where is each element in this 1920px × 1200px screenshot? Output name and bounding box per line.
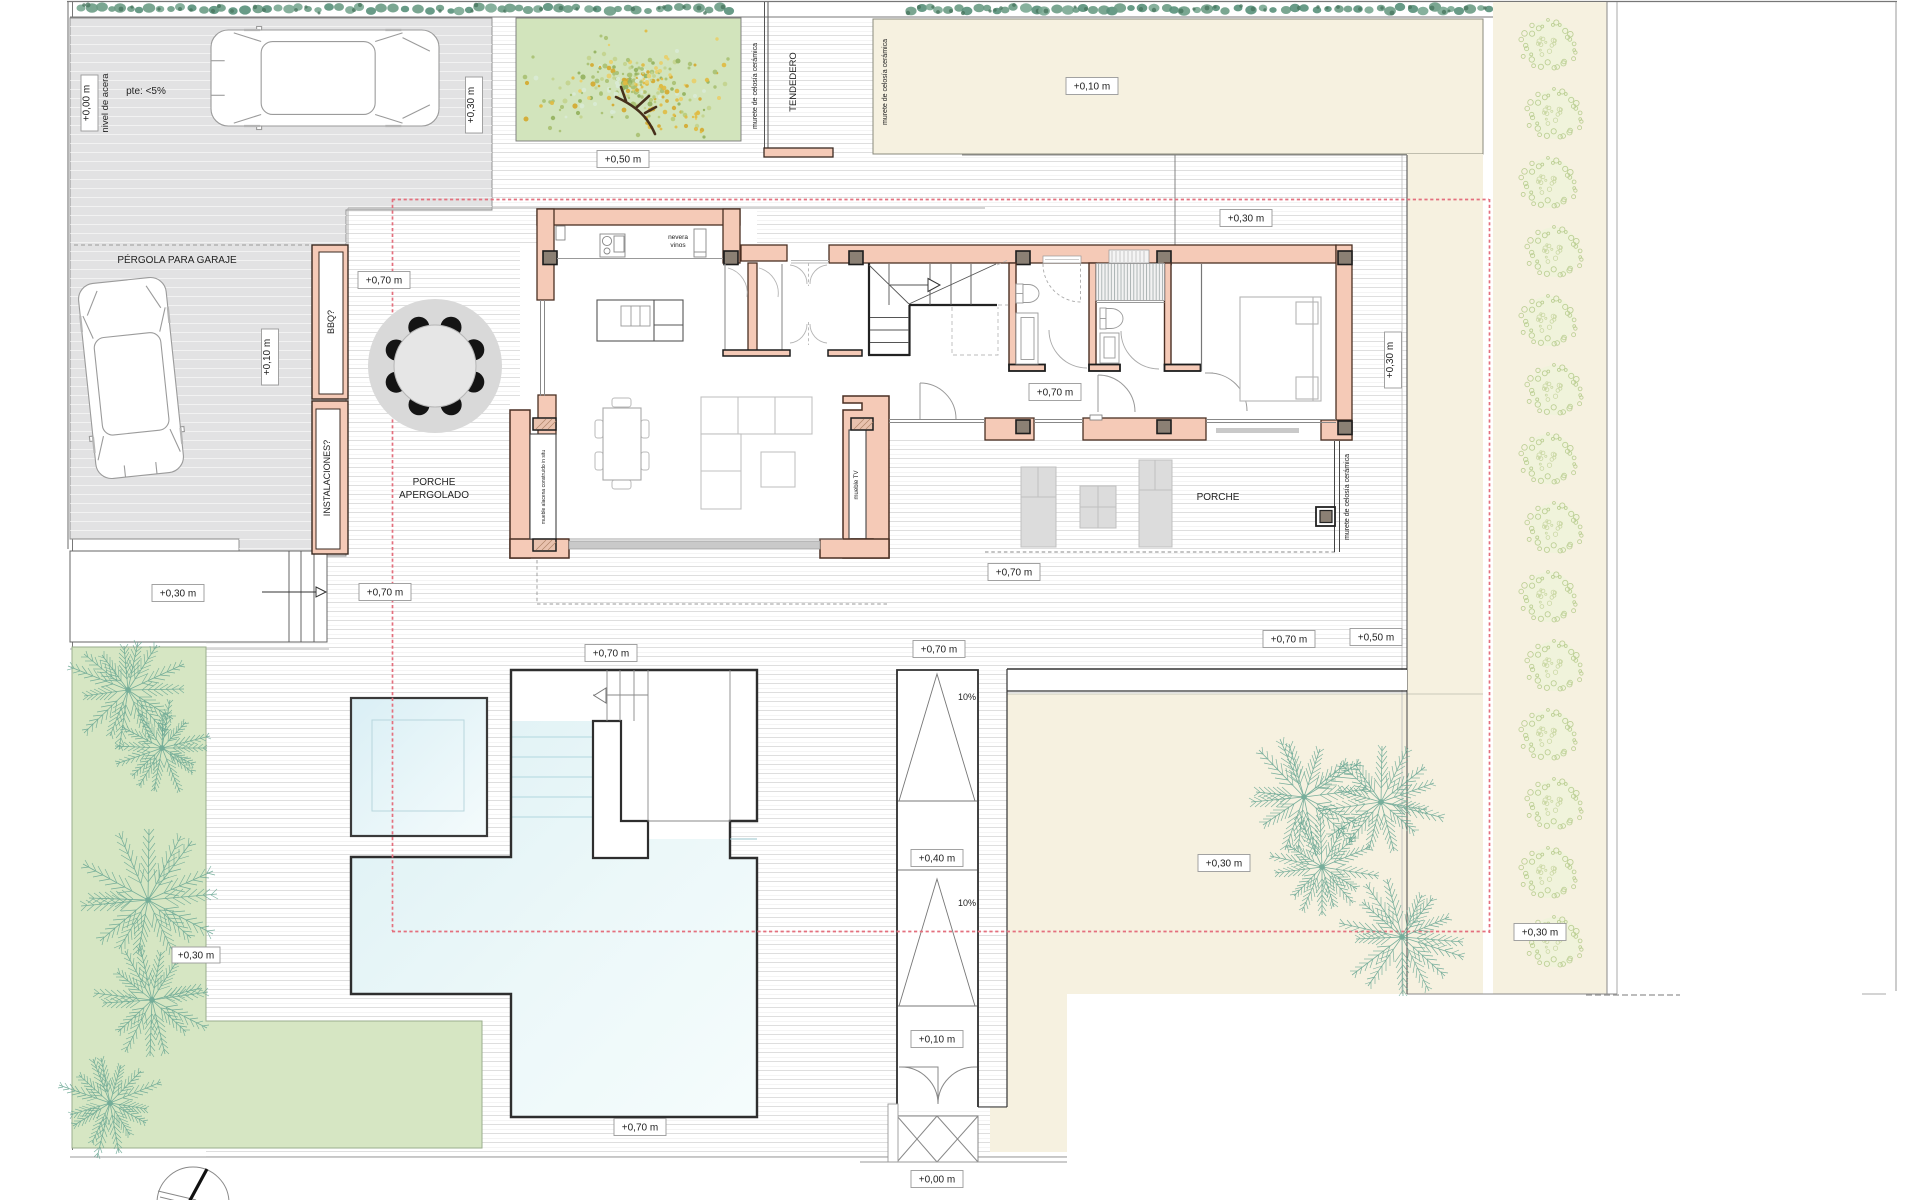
svg-text:+0,30 m: +0,30 m xyxy=(1385,342,1396,378)
svg-text:murete de celosía cerámica: murete de celosía cerámica xyxy=(752,43,759,129)
svg-text:+0,30 m: +0,30 m xyxy=(466,87,477,123)
svg-text:mueble alacena construido in s: mueble alacena construido in situ xyxy=(541,450,547,524)
svg-text:+0,40 m: +0,40 m xyxy=(919,854,955,865)
svg-text:+0,70 m: +0,70 m xyxy=(367,588,403,599)
svg-text:vinos: vinos xyxy=(670,242,686,249)
svg-text:+0,30 m: +0,30 m xyxy=(178,951,214,962)
svg-text:10%: 10% xyxy=(958,692,976,702)
svg-text:+0,50 m: +0,50 m xyxy=(605,155,641,166)
svg-text:murete de celosía cerámica: murete de celosía cerámica xyxy=(882,39,889,125)
svg-text:10%: 10% xyxy=(958,898,976,908)
svg-text:BBQ?: BBQ? xyxy=(326,310,336,334)
svg-text:+0,70 m: +0,70 m xyxy=(996,568,1032,579)
svg-text:+0,70 m: +0,70 m xyxy=(921,645,957,656)
svg-text:nevera: nevera xyxy=(668,234,688,241)
svg-text:pte: <5%: pte: <5% xyxy=(126,86,166,97)
svg-text:PORCHE: PORCHE xyxy=(1197,492,1240,503)
svg-text:mueble TV: mueble TV xyxy=(854,471,860,500)
svg-text:nivel de acera: nivel de acera xyxy=(100,73,111,133)
svg-text:+0,30 m: +0,30 m xyxy=(1522,928,1558,939)
svg-text:+0,70 m: +0,70 m xyxy=(622,1123,658,1134)
svg-text:+0,70 m: +0,70 m xyxy=(1271,635,1307,646)
svg-text:+0,30 m: +0,30 m xyxy=(1228,214,1264,225)
svg-text:PÉRGOLA PARA GARAJE: PÉRGOLA PARA GARAJE xyxy=(117,253,237,266)
svg-text:+0,70 m: +0,70 m xyxy=(366,276,402,287)
svg-text:PORCHE: PORCHE xyxy=(413,477,456,488)
svg-text:+0,30 m: +0,30 m xyxy=(160,589,196,600)
svg-text:+0,10 m: +0,10 m xyxy=(1074,82,1110,93)
svg-text:+0,50 m: +0,50 m xyxy=(1358,633,1394,644)
svg-text:+0,10 m: +0,10 m xyxy=(262,339,273,375)
svg-text:+0,70 m: +0,70 m xyxy=(1037,388,1073,399)
svg-text:+0,70 m: +0,70 m xyxy=(593,649,629,660)
svg-text:+0,10 m: +0,10 m xyxy=(919,1035,955,1046)
svg-text:INSTALACIONES?: INSTALACIONES? xyxy=(322,440,332,516)
svg-text:+0,30 m: +0,30 m xyxy=(1206,859,1242,870)
svg-text:+0,00 m: +0,00 m xyxy=(919,1175,955,1186)
svg-text:murete de celosía cerámica: murete de celosía cerámica xyxy=(1344,454,1351,540)
svg-text:APERGOLADO: APERGOLADO xyxy=(399,490,469,501)
svg-text:TENDEDERO: TENDEDERO xyxy=(788,52,799,112)
svg-text:+0,00 m: +0,00 m xyxy=(82,85,93,121)
